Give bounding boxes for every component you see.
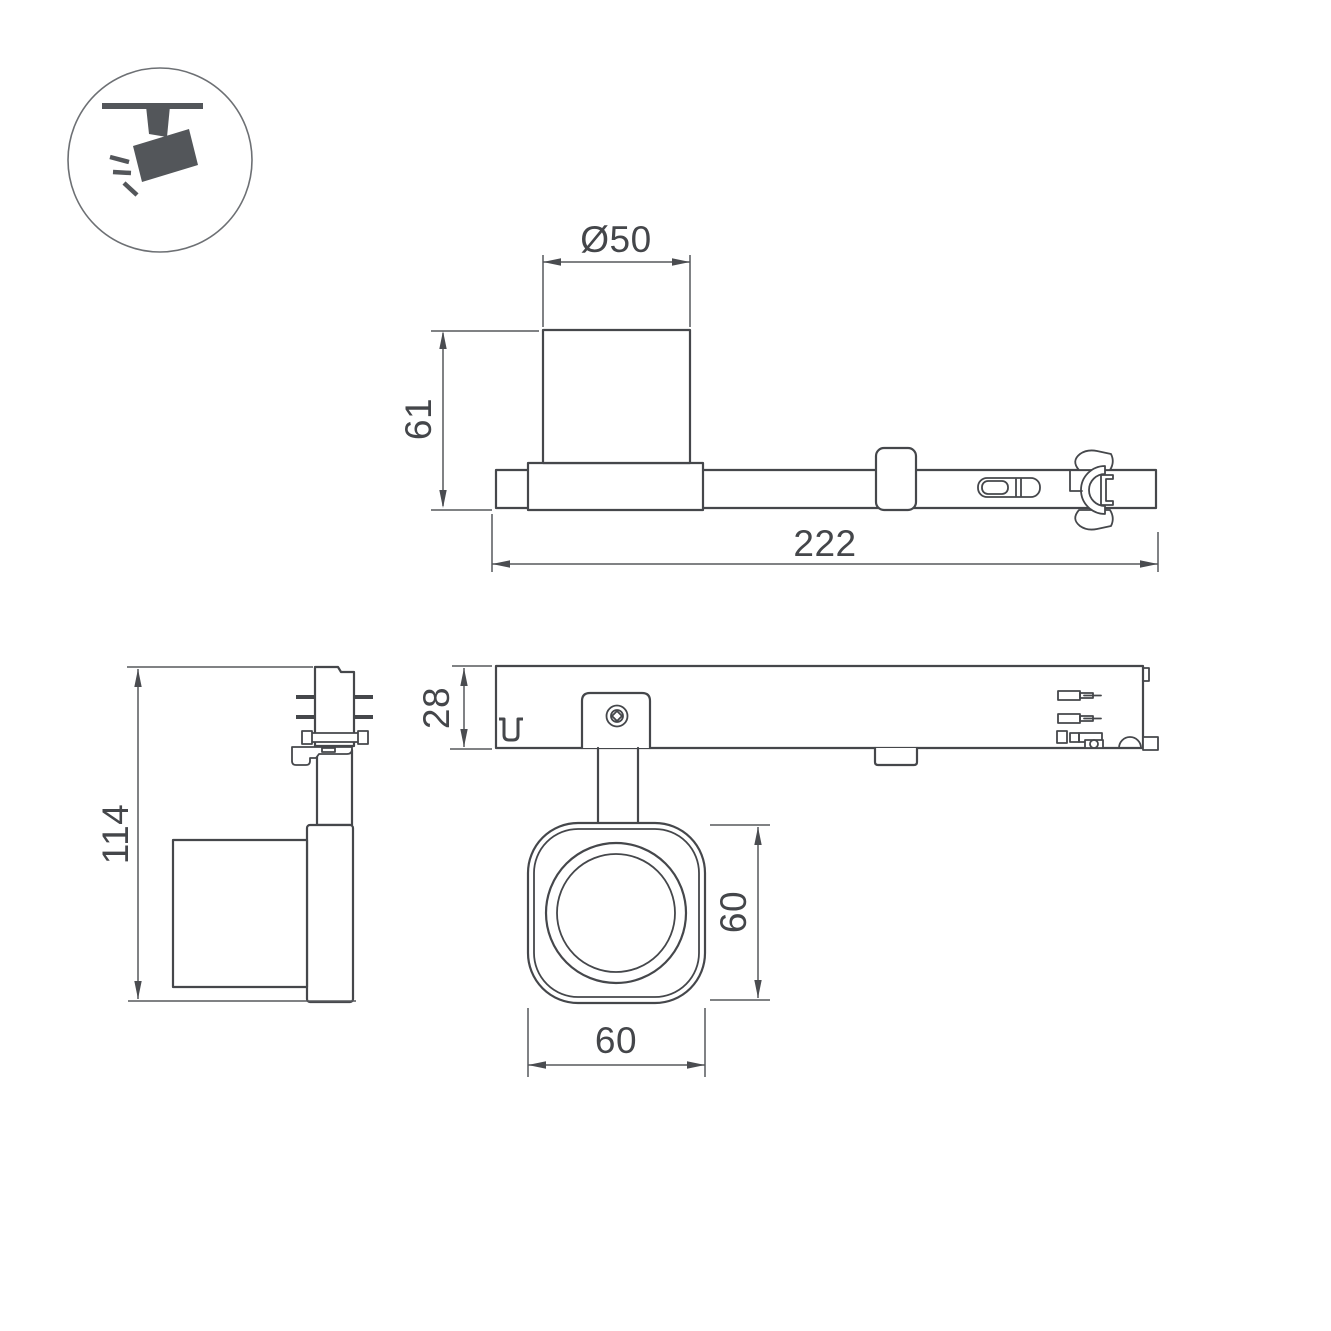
stem-bottom bbox=[598, 748, 638, 823]
contact-pins-bottom bbox=[1058, 691, 1101, 723]
rail-end-parts bbox=[1057, 731, 1103, 748]
mount-knob-bottom bbox=[875, 748, 917, 765]
dim-label-head-width: 60 bbox=[595, 1020, 637, 1061]
dim-body-height: 61 bbox=[398, 331, 539, 510]
dim-rail-height: 28 bbox=[416, 666, 492, 749]
rail-corner-arch bbox=[1119, 737, 1141, 748]
dim-total-length: 222 bbox=[492, 514, 1158, 572]
dim-diameter: Ø50 bbox=[543, 219, 690, 327]
lamp-body-front bbox=[307, 825, 353, 1002]
head-outline-outer bbox=[528, 823, 705, 1003]
lamp-head-bottom bbox=[528, 823, 705, 1003]
technical-drawing: Ø50 61 222 bbox=[0, 0, 1331, 1331]
mount-plate bbox=[582, 693, 650, 748]
lamp-head-front bbox=[173, 840, 307, 987]
mount-knob bbox=[876, 448, 916, 510]
slider-switch bbox=[978, 478, 1040, 497]
icon-stem bbox=[146, 106, 170, 137]
dim-label-total-length: 222 bbox=[793, 523, 856, 564]
lamp-cylinder bbox=[543, 330, 690, 463]
view-side-elevation: Ø50 61 222 bbox=[398, 219, 1158, 572]
rail-left-clip bbox=[499, 719, 523, 740]
view-front-elevation: 114 bbox=[95, 667, 373, 1002]
latch-top-wing bbox=[1075, 450, 1113, 470]
dim-label-diameter: Ø50 bbox=[580, 219, 651, 260]
adapter-bar bbox=[302, 731, 368, 744]
base-plate bbox=[528, 463, 703, 510]
dim-head-height: 60 bbox=[710, 825, 770, 1000]
dim-label-rail-height: 28 bbox=[416, 687, 457, 729]
dim-label-fixture-height: 114 bbox=[95, 804, 136, 865]
latch-bracket bbox=[1101, 475, 1113, 505]
rail-end-tab bbox=[1143, 737, 1158, 750]
view-bottom: 28 60 60 bbox=[416, 666, 1158, 1077]
dim-label-body-height: 61 bbox=[398, 398, 439, 440]
latch-bottom-wing bbox=[1075, 510, 1113, 530]
track-latch bbox=[1070, 450, 1113, 529]
stem-front bbox=[317, 750, 352, 825]
dim-label-head-height: 60 bbox=[713, 891, 754, 933]
dim-head-width: 60 bbox=[528, 1008, 705, 1077]
track-spotlight-icon bbox=[68, 68, 252, 252]
drawing-canvas: Ø50 61 222 bbox=[0, 0, 1331, 1331]
